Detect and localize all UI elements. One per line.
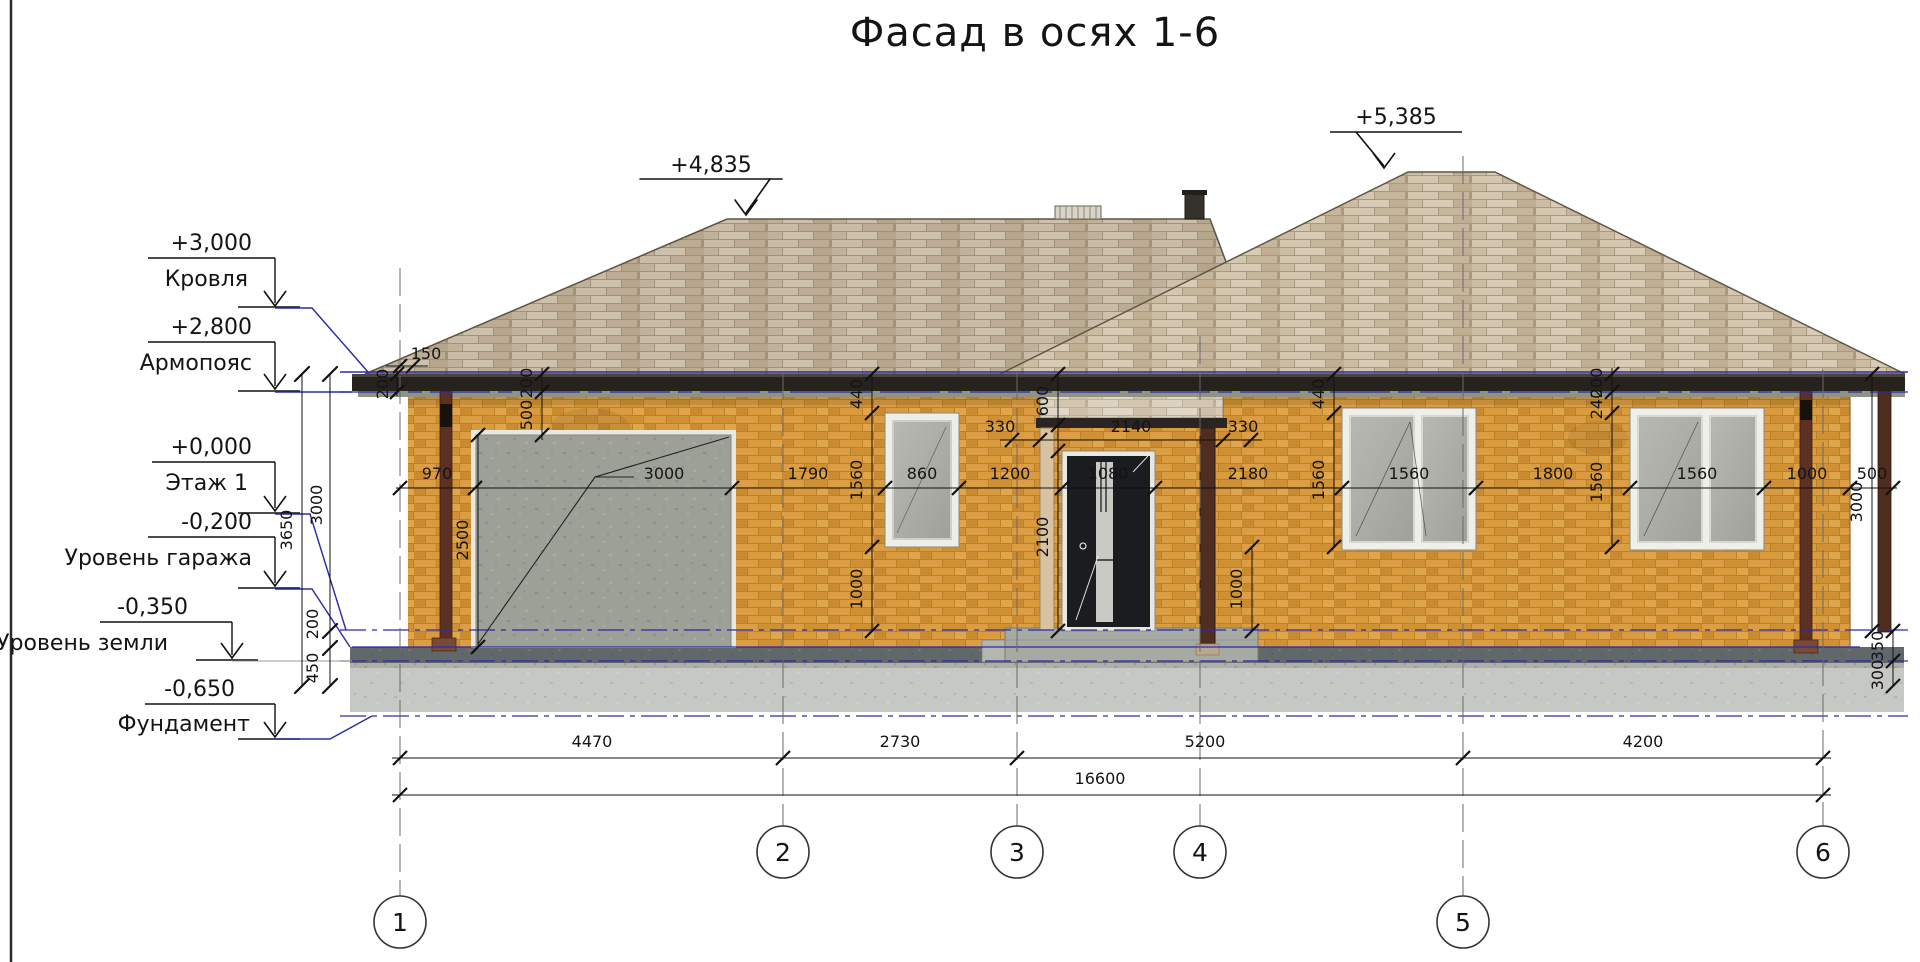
elevation-label: Кровля bbox=[165, 267, 248, 292]
page-title: Фасад в осях 1-6 bbox=[850, 10, 1220, 56]
elevation-value: +0,000 bbox=[171, 435, 252, 460]
elevation-marker-armopoyas: +2,800 Армопояс bbox=[140, 315, 352, 392]
dim-label: 440 bbox=[1309, 379, 1328, 410]
left-vertical-dims: 3650 3000 200 450 bbox=[277, 367, 337, 693]
axis-number: 1 bbox=[392, 908, 408, 937]
elevation-label: Армопояс bbox=[140, 351, 252, 376]
axis-bubble-4: 4 bbox=[1174, 826, 1226, 878]
dim-label: 450 bbox=[303, 653, 322, 684]
elevation-label: Этаж 1 bbox=[166, 471, 248, 496]
garage-door bbox=[471, 430, 736, 648]
dim-label: 240 bbox=[1587, 389, 1606, 420]
dim-label: 1000 bbox=[1227, 569, 1246, 610]
axis-number: 2 bbox=[775, 838, 791, 867]
dim-label: 200 bbox=[303, 609, 322, 640]
roof-mark-right-value: +5,385 bbox=[1355, 105, 1436, 130]
dim-label: 4470 bbox=[572, 732, 613, 751]
dim-label: 1800 bbox=[1533, 464, 1574, 483]
corner-post-right bbox=[1878, 391, 1891, 632]
dim-label: 2180 bbox=[1228, 464, 1269, 483]
axis-bubble-5: 5 bbox=[1437, 896, 1489, 948]
elevation-value: +3,000 bbox=[171, 231, 252, 256]
axis-bubbles: 2 3 4 6 1 5 bbox=[374, 826, 1849, 948]
dim-label: 600 bbox=[1033, 386, 1052, 417]
axis-number: 4 bbox=[1192, 838, 1208, 867]
dim-label: 330 bbox=[1228, 417, 1259, 436]
axis-number: 6 bbox=[1815, 838, 1831, 867]
dim-label: 3000 bbox=[307, 485, 326, 526]
dim-label: 300 bbox=[1868, 660, 1887, 691]
dim-label: 1560 bbox=[1309, 460, 1328, 501]
dim-label: 5200 bbox=[1185, 732, 1226, 751]
dim-label: 1560 bbox=[1677, 464, 1718, 483]
dim-label: 1000 bbox=[847, 569, 866, 610]
chimney bbox=[1182, 190, 1207, 219]
right-vertical-dims: 3000 350 300 bbox=[1847, 367, 1900, 693]
dim-label: 1080 bbox=[1088, 464, 1129, 483]
elevation-label: Уровень гаража bbox=[65, 546, 252, 571]
eave-fascia bbox=[352, 374, 1905, 397]
elevation-value: -0,650 bbox=[164, 677, 235, 702]
elevation-marker-ground-level: -0,350 Уровень земли bbox=[0, 595, 352, 661]
dim-label: 500 bbox=[517, 400, 536, 431]
elevation-label: Фундамент bbox=[118, 712, 251, 737]
dim-label: 200 bbox=[517, 368, 536, 399]
dim-label: 1000 bbox=[1787, 464, 1828, 483]
dim-label: 440 bbox=[847, 379, 866, 410]
roof-vent bbox=[1055, 206, 1101, 219]
dim-label: 4200 bbox=[1623, 732, 1664, 751]
dim-label: 500 bbox=[1857, 464, 1888, 483]
axis-bubble-3: 3 bbox=[991, 826, 1043, 878]
dim-label: 1200 bbox=[990, 464, 1031, 483]
roof bbox=[365, 172, 1905, 374]
facade-svg: Фасад в осях 1-6 +4,835 +5,385 bbox=[0, 0, 1920, 962]
dim-label: 1560 bbox=[1587, 462, 1606, 503]
axis-bubble-1: 1 bbox=[374, 896, 426, 948]
dim-label: 1560 bbox=[847, 460, 866, 501]
roof-mark-left-value: +4,835 bbox=[670, 153, 751, 178]
axis-number: 3 bbox=[1009, 838, 1025, 867]
dim-label: 2140 bbox=[1111, 417, 1152, 436]
bottom-dim-row-total: 16600 bbox=[392, 769, 1831, 802]
roof-elevation-left: +4,835 bbox=[640, 153, 782, 215]
bottom-dim-row-1: 4470 2730 5200 4200 bbox=[392, 732, 1831, 765]
facade-drawing-sheet: Фасад в осях 1-6 +4,835 +5,385 bbox=[0, 0, 1920, 962]
dim-label: 16600 bbox=[1075, 769, 1126, 788]
elevation-marker-foundation: -0,650 Фундамент bbox=[118, 677, 372, 739]
dim-label: 350 bbox=[1868, 631, 1887, 662]
axis-bubble-2: 2 bbox=[757, 826, 809, 878]
dim-label: 330 bbox=[985, 417, 1016, 436]
dim-label: 3650 bbox=[277, 510, 296, 551]
dim-label: 970 bbox=[422, 464, 453, 483]
dim-label: 3000 bbox=[644, 464, 685, 483]
roof-elevation-right: +5,385 bbox=[1330, 105, 1462, 168]
dim-label: 200 bbox=[373, 369, 392, 400]
elevation-value: -0,350 bbox=[117, 595, 188, 620]
dim-label: 1560 bbox=[1389, 464, 1430, 483]
axis-number: 5 bbox=[1455, 908, 1471, 937]
elevation-label: Уровень земли bbox=[0, 631, 168, 656]
dim-label: 150 bbox=[411, 344, 442, 363]
dim-label: 2500 bbox=[453, 520, 472, 561]
elevation-value: -0,200 bbox=[181, 510, 252, 535]
dim-label: 1790 bbox=[788, 464, 829, 483]
dim-label: 2730 bbox=[880, 732, 921, 751]
dim-label: 2100 bbox=[1033, 517, 1052, 558]
elevation-value: +2,800 bbox=[171, 315, 252, 340]
axis-bubble-6: 6 bbox=[1797, 826, 1849, 878]
dim-label: 860 bbox=[907, 464, 938, 483]
